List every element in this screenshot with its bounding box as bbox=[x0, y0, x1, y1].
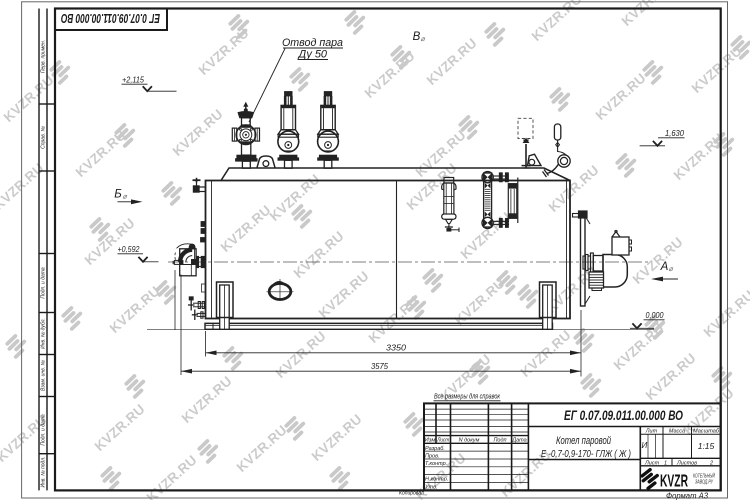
svg-text:Взам. инв. №: Взам. инв. № bbox=[41, 359, 47, 391]
svg-text:ЕГ 0.07.09.011.00.000 ВО: ЕГ 0.07.09.011.00.000 ВО bbox=[61, 11, 160, 25]
svg-text:Подп. и дата: Подп. и дата bbox=[41, 414, 47, 446]
svg-text:Все размеры для справок: Все размеры для справок bbox=[434, 392, 500, 401]
svg-text:Отвод пара: Отвод пара bbox=[282, 37, 343, 49]
svg-text:Масса: Масса bbox=[669, 429, 685, 435]
svg-text:Лист: Лист bbox=[436, 438, 449, 444]
svg-text:Т.контр.: Т.контр. bbox=[425, 461, 447, 467]
svg-text:Утв.: Утв. bbox=[424, 484, 438, 490]
svg-text:Перв. примен.: Перв. примен. bbox=[41, 40, 47, 73]
svg-text:Н.контр.: Н.контр. bbox=[425, 477, 448, 483]
svg-text:Б: Б bbox=[114, 189, 122, 201]
svg-text:ЗАВОД.РУ: ЗАВОД.РУ bbox=[695, 480, 714, 486]
svg-text:Копировал: Копировал bbox=[399, 491, 424, 497]
svg-text:Разраб.: Разраб. bbox=[425, 446, 445, 452]
svg-text:Подп. и дата: Подп. и дата bbox=[41, 267, 47, 299]
svg-text:3575: 3575 bbox=[371, 361, 388, 371]
svg-text:Е -0,7-0,9-170- ГЛЖ ( Ж ): Е -0,7-0,9-170- ГЛЖ ( Ж ) bbox=[541, 448, 631, 460]
svg-text:Формат А3: Формат А3 bbox=[666, 491, 709, 500]
svg-text:КОТЕЛЬНЫЙ: КОТЕЛЬНЫЙ bbox=[693, 472, 715, 480]
svg-text:Лит: Лит bbox=[645, 429, 658, 435]
svg-text:+0,592: +0,592 bbox=[118, 244, 140, 254]
svg-text:Дата: Дата bbox=[511, 438, 527, 444]
svg-text:Масштаб: Масштаб bbox=[693, 429, 720, 435]
svg-text:Пров.: Пров. bbox=[425, 454, 440, 460]
svg-text:0,000: 0,000 bbox=[646, 310, 664, 320]
svg-text:N докум: N докум bbox=[459, 438, 480, 444]
svg-text:В: В bbox=[413, 31, 421, 43]
svg-text:+2,115: +2,115 bbox=[122, 75, 144, 85]
svg-text:KVZR: KVZR bbox=[660, 471, 688, 491]
svg-text:Инв. № подл.: Инв. № подл. bbox=[41, 456, 47, 487]
svg-text:Котел паровой: Котел паровой bbox=[556, 435, 611, 447]
svg-text:1,630: 1,630 bbox=[665, 128, 684, 138]
svg-text:2: 2 bbox=[709, 460, 713, 466]
svg-text:Лист: Лист bbox=[644, 460, 660, 466]
svg-text:1: 1 bbox=[664, 460, 667, 466]
svg-text:Ду 50: Ду 50 bbox=[297, 49, 328, 61]
svg-text:3350: 3350 bbox=[386, 343, 406, 353]
svg-text:Листов: Листов bbox=[676, 460, 697, 466]
svg-text:А: А bbox=[660, 261, 669, 273]
svg-text:Подп: Подп bbox=[493, 438, 506, 444]
svg-text:1:15: 1:15 bbox=[698, 441, 715, 451]
svg-text:ЕГ 0.07.09.011.00.000 ВО: ЕГ 0.07.09.011.00.000 ВО bbox=[564, 407, 683, 423]
svg-text:И: И bbox=[642, 441, 648, 450]
svg-text:Изм: Изм bbox=[425, 438, 436, 444]
svg-text:Инв. № дубл.: Инв. № дубл. bbox=[41, 318, 47, 349]
svg-text:Справ. №: Справ. № bbox=[41, 126, 47, 149]
